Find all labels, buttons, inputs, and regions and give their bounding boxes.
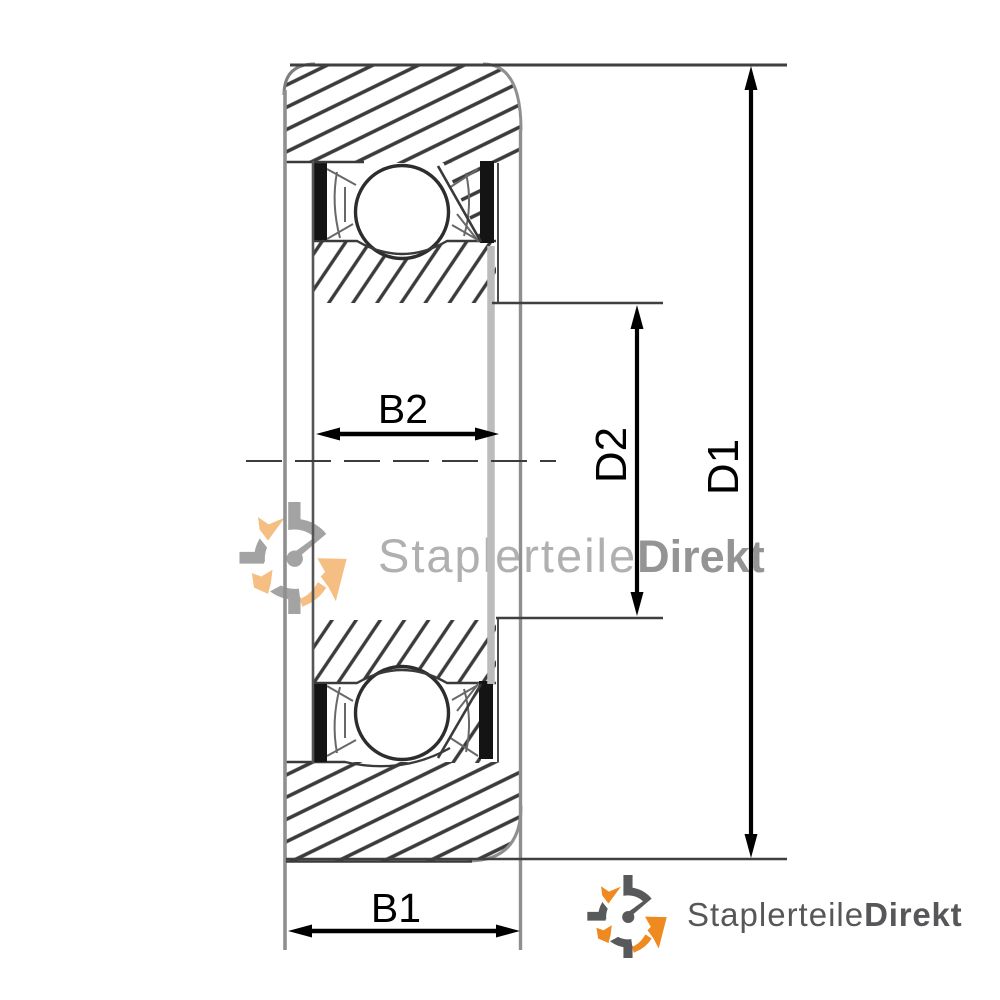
svg-text:D1: D1 (699, 439, 748, 495)
svg-text:B1: B1 (371, 885, 421, 931)
svg-text:StaplerteileDirekt: StaplerteileDirekt (378, 529, 765, 582)
svg-text:StaplerteileDirekt: StaplerteileDirekt (687, 896, 962, 933)
svg-text:D2: D2 (587, 427, 636, 483)
svg-text:B2: B2 (378, 386, 428, 432)
